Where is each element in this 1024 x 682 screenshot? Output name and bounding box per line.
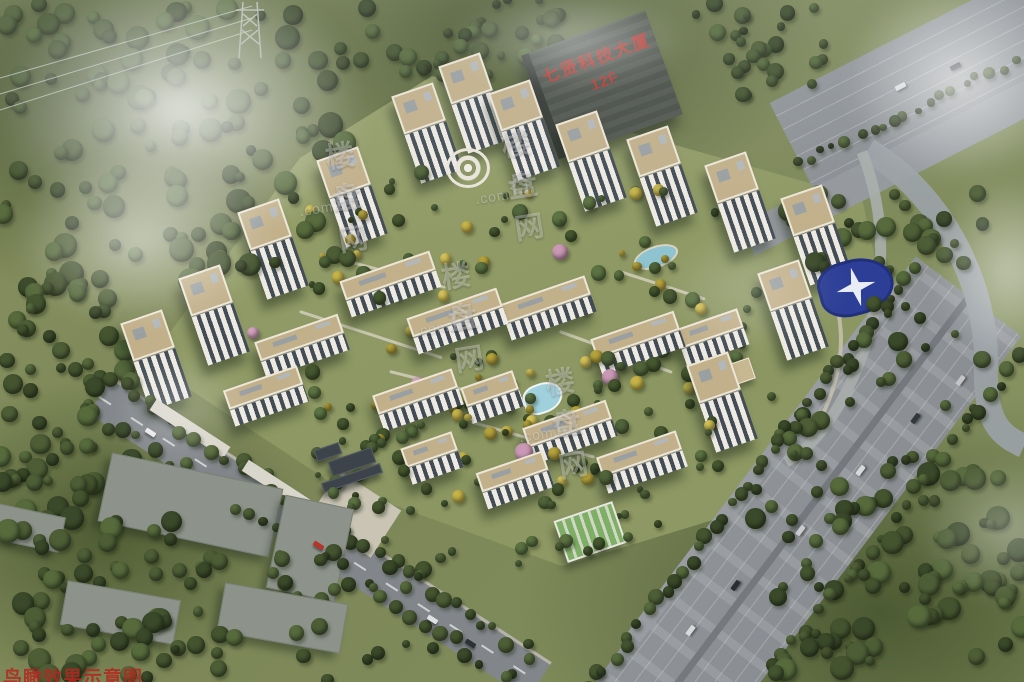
tree (45, 242, 63, 260)
tree (523, 639, 534, 650)
rooftop-unit (540, 420, 565, 433)
tree (110, 632, 129, 651)
rooftop-unit (210, 273, 220, 283)
tree (1012, 347, 1024, 362)
tree (687, 556, 701, 570)
tree (858, 129, 868, 139)
tree (167, 68, 185, 86)
tree (50, 182, 65, 197)
tree (43, 330, 55, 342)
tree (896, 271, 911, 286)
tree (705, 429, 712, 436)
rooftop-unit (524, 457, 536, 464)
tree (461, 221, 473, 233)
tree (896, 351, 913, 368)
tree (777, 22, 785, 30)
tree (820, 372, 832, 384)
tree (353, 52, 368, 67)
tree (406, 506, 415, 515)
rooftop-unit (348, 155, 358, 165)
rooftop-unit (132, 326, 147, 341)
tree (768, 665, 784, 681)
rooftop-unit (583, 407, 599, 416)
tree (899, 200, 910, 211)
tree (961, 544, 981, 564)
rooftop-unit (718, 360, 728, 370)
tree (599, 470, 614, 485)
tree (696, 463, 704, 471)
rooftop-unit (567, 127, 582, 142)
tree (1010, 564, 1024, 582)
rooftop-unit (269, 207, 279, 217)
tree (61, 624, 73, 636)
tree (313, 282, 325, 294)
tree (228, 58, 241, 71)
tree (358, 210, 368, 220)
tree (414, 572, 423, 581)
tree (940, 400, 951, 411)
tree (876, 217, 896, 237)
rooftop-unit (277, 372, 291, 380)
tree (149, 567, 163, 581)
tree (593, 537, 606, 550)
rooftop-unit (716, 168, 731, 183)
tree (526, 369, 534, 377)
tree (346, 403, 355, 412)
tree (258, 517, 267, 526)
tree (971, 405, 986, 420)
tree (786, 514, 798, 526)
aerial-masterplan-render: 七贤科技大厦 12F 鸟瞰效果示意图 楼盘网.com楼盘网.com楼盘网.com… (0, 0, 1024, 682)
rooftop-unit (249, 215, 264, 230)
tree (526, 536, 537, 547)
tree (809, 534, 823, 548)
tree (314, 554, 327, 567)
tree (769, 588, 787, 606)
tree (525, 393, 536, 404)
tree (999, 361, 1014, 376)
tree (865, 578, 881, 594)
rooftop-unit (472, 385, 488, 395)
tree (956, 256, 971, 271)
tree (131, 643, 149, 661)
tree (199, 118, 223, 142)
tree (608, 379, 621, 392)
tree (871, 125, 880, 134)
tree (973, 351, 991, 369)
tree (646, 357, 661, 372)
tree (296, 221, 314, 239)
tree (187, 636, 205, 654)
tree (252, 149, 273, 170)
tree (807, 79, 817, 89)
tree (453, 39, 467, 53)
rooftop-unit (471, 295, 488, 304)
rooftop-unit (658, 134, 668, 144)
rooftop-unit (450, 69, 465, 84)
rooftop-unit (651, 318, 667, 327)
rooftop-unit (389, 388, 413, 401)
tree (997, 552, 1010, 565)
tree (60, 441, 74, 455)
tree (407, 427, 418, 438)
tree (876, 377, 886, 387)
tree (615, 419, 630, 434)
tree (843, 365, 853, 375)
tree (838, 136, 850, 148)
tree (75, 87, 90, 102)
rooftop-unit (190, 281, 205, 296)
tree (169, 237, 194, 262)
tree (91, 270, 109, 288)
tree (226, 89, 251, 114)
tree (87, 196, 101, 210)
rooftop-unit (812, 193, 822, 203)
tree (780, 5, 795, 20)
tree (156, 12, 174, 30)
tree (211, 647, 223, 659)
tree (219, 456, 229, 466)
tree (48, 40, 67, 59)
tree (619, 250, 625, 256)
tree (668, 262, 676, 270)
tree (692, 10, 700, 18)
tree (339, 250, 356, 267)
tree (644, 407, 653, 416)
tree (968, 648, 985, 665)
tree (269, 257, 280, 268)
tree (914, 312, 926, 324)
tree (421, 483, 432, 494)
tree (917, 236, 936, 255)
tree (813, 604, 824, 615)
tree (611, 653, 624, 666)
tree (92, 119, 115, 142)
tree (594, 386, 602, 394)
tree (524, 653, 535, 664)
rooftop-unit (689, 325, 708, 336)
tree (417, 421, 425, 429)
tree (936, 211, 952, 227)
rooftop-unit (491, 468, 511, 479)
tree (711, 208, 719, 216)
tree (894, 285, 903, 294)
tree (844, 575, 852, 583)
tree (13, 101, 27, 115)
tree (450, 353, 457, 360)
tree (623, 532, 633, 542)
tree (77, 548, 92, 563)
tree (765, 500, 778, 513)
tree (222, 222, 241, 241)
tree (547, 501, 556, 510)
tree (431, 204, 438, 211)
tree (274, 171, 297, 194)
tree (441, 500, 448, 507)
tree (935, 452, 950, 467)
tree (866, 545, 881, 560)
tree (448, 547, 456, 555)
tree (630, 376, 643, 389)
tree (901, 455, 911, 465)
tree (807, 156, 816, 165)
tree (308, 51, 328, 71)
tree (614, 270, 624, 280)
tree (365, 24, 380, 39)
rooftop-unit (608, 331, 633, 344)
tree (193, 51, 211, 69)
tree (440, 253, 451, 264)
tree (753, 465, 764, 476)
tree (337, 418, 348, 429)
tree (1012, 56, 1021, 65)
rooftop-unit (698, 368, 713, 383)
tree (103, 195, 125, 217)
tree (800, 566, 815, 581)
tree (171, 645, 180, 654)
tree (884, 309, 893, 318)
rooftop-unit (403, 99, 418, 114)
tree (889, 115, 901, 127)
tree (639, 236, 651, 248)
rooftop-unit (498, 376, 508, 383)
tree (221, 121, 233, 133)
tree (552, 244, 568, 260)
tree (293, 97, 310, 114)
tree (633, 361, 648, 376)
tree (288, 192, 299, 203)
tree (751, 287, 762, 298)
rooftop-unit (500, 96, 515, 111)
tree (983, 67, 995, 79)
tree (915, 108, 921, 114)
tree (685, 399, 695, 409)
tree (809, 56, 822, 69)
tree (375, 547, 386, 558)
tree (950, 239, 959, 248)
tree (98, 533, 117, 552)
tree (46, 453, 59, 466)
tree (381, 536, 389, 544)
tree (296, 649, 310, 663)
tree (418, 64, 429, 75)
tree (86, 623, 100, 637)
tree (735, 487, 748, 500)
tree (782, 531, 794, 543)
tree (814, 388, 826, 400)
tree (112, 562, 129, 579)
tree (695, 450, 707, 462)
tree (621, 510, 629, 518)
tree (185, 15, 210, 40)
tree (255, 10, 266, 21)
tree (515, 542, 528, 555)
tree (476, 621, 485, 630)
tree (723, 53, 734, 64)
tree (373, 590, 386, 603)
tree (28, 175, 42, 189)
tree (25, 364, 36, 375)
tree (663, 586, 674, 597)
tree (43, 570, 62, 589)
tree (147, 524, 161, 538)
tree (399, 65, 412, 78)
tree (402, 610, 416, 624)
tree (9, 161, 28, 180)
tree (990, 470, 1006, 486)
tree (128, 247, 143, 262)
tree (918, 573, 940, 595)
tree (23, 383, 37, 397)
tree (243, 508, 255, 520)
tree (531, 34, 543, 46)
tree (1000, 66, 1009, 75)
tree (32, 416, 46, 430)
tree (802, 398, 811, 407)
tree (275, 52, 291, 68)
tree (32, 628, 46, 642)
tree (392, 214, 405, 227)
rooftop-unit (520, 88, 530, 98)
tree (475, 262, 488, 275)
tree (435, 553, 445, 563)
tree (601, 351, 615, 365)
rooftop-unit (769, 276, 784, 291)
tree (814, 582, 824, 592)
tree (640, 490, 649, 499)
tree (565, 230, 577, 242)
tree (161, 511, 182, 532)
rooftop-unit (412, 446, 428, 456)
tree (400, 581, 412, 593)
tree (452, 409, 463, 420)
tree (832, 518, 849, 535)
tree (484, 427, 497, 440)
tree (52, 427, 63, 438)
tree (816, 460, 827, 471)
rooftop-unit (438, 438, 448, 445)
tree (969, 185, 986, 202)
tree (328, 487, 339, 498)
tree (115, 422, 131, 438)
rooftop-unit (720, 315, 732, 322)
tree (452, 490, 465, 503)
tree (555, 542, 564, 551)
rooftop-unit (638, 142, 653, 157)
tree (10, 66, 31, 87)
rooftop-unit (328, 163, 343, 178)
tree (629, 187, 642, 200)
tree (68, 362, 83, 377)
spiral-plaza (446, 148, 490, 188)
tree (91, 637, 106, 652)
tree (751, 484, 761, 494)
tree (526, 405, 535, 414)
tree (145, 140, 157, 152)
tree (85, 377, 105, 397)
tree (710, 520, 723, 533)
tree (823, 588, 835, 600)
tree (274, 551, 290, 567)
tree (649, 286, 660, 297)
tree (35, 540, 49, 554)
tree (120, 48, 143, 71)
tree (580, 356, 591, 367)
tree (501, 671, 513, 682)
tree (694, 541, 704, 551)
rooftop-unit (425, 309, 452, 323)
tree (414, 165, 429, 180)
rooftop-unit (518, 296, 544, 309)
tree (579, 458, 588, 467)
tree (436, 592, 452, 608)
tree (148, 442, 164, 458)
tree (743, 305, 751, 313)
rooftop-unit (736, 160, 746, 170)
tree (821, 647, 833, 659)
rooftop-unit (789, 268, 799, 278)
tree (786, 635, 796, 645)
rooftop-unit (358, 272, 385, 286)
tree (793, 157, 802, 166)
tree (902, 500, 911, 509)
tree (26, 303, 36, 313)
tree (321, 674, 334, 682)
tree (964, 467, 987, 490)
tree (94, 79, 105, 90)
rooftop-unit (430, 376, 445, 384)
tree (888, 332, 907, 351)
tree (481, 21, 498, 38)
tree (56, 363, 66, 373)
tree (341, 577, 356, 592)
tree (107, 71, 130, 94)
tree (52, 342, 70, 360)
rooftop-unit (404, 258, 421, 267)
tree (334, 42, 347, 55)
tree (631, 619, 641, 629)
tree (591, 468, 598, 475)
tree (567, 394, 580, 407)
tree (283, 5, 302, 24)
tree (800, 638, 818, 656)
tree (358, 0, 376, 17)
tree (489, 227, 499, 237)
tree (936, 247, 952, 263)
tree (921, 343, 930, 352)
tree (458, 260, 467, 269)
rooftop-unit (561, 283, 577, 292)
tree (735, 87, 750, 102)
tree (131, 431, 139, 439)
tree (543, 10, 560, 27)
tree (345, 234, 356, 245)
tree (940, 470, 961, 491)
tree (0, 519, 20, 543)
tree (399, 48, 417, 66)
tree (581, 473, 593, 485)
tree (745, 508, 766, 529)
tree (1, 406, 18, 423)
tree (616, 362, 625, 371)
rooftop-unit (654, 438, 669, 446)
tree (858, 221, 877, 240)
tree (372, 501, 384, 513)
tree (644, 602, 656, 614)
rooftop-unit (470, 61, 480, 71)
rooftop-unit (272, 334, 297, 347)
tree (659, 187, 668, 196)
